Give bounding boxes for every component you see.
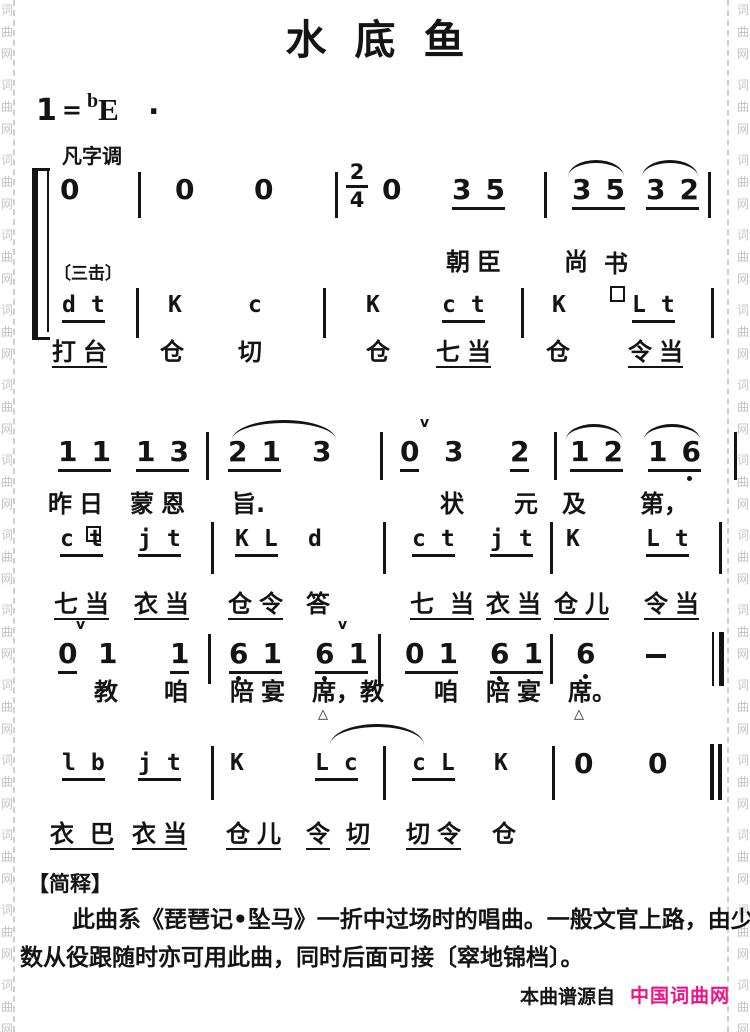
note: 1: [98, 640, 117, 668]
note-group: 0: [58, 640, 77, 674]
percussion-group: jt: [138, 752, 181, 781]
percussion-group: ct: [60, 528, 103, 557]
barline: [211, 746, 214, 800]
barline: [383, 746, 386, 800]
percussion-group: lb: [62, 752, 105, 781]
watermark-char: 词: [1, 754, 13, 766]
lyric: 仓: [366, 340, 390, 364]
lyric: 朝臣: [446, 250, 508, 274]
watermark-char: 词: [1, 454, 13, 466]
lyric: 蒙恩: [130, 492, 192, 516]
lyric: 仓: [492, 822, 516, 846]
watermark-char: 网: [737, 348, 749, 360]
note-group: 1: [170, 640, 189, 674]
time-signature: 2 4: [346, 162, 368, 211]
key-signature: 1 = b E: [36, 92, 119, 128]
lyric: 第，: [640, 492, 688, 516]
watermark-char: 网: [737, 273, 749, 285]
note: 3: [312, 438, 331, 466]
watermark-char: 曲: [1, 326, 13, 338]
barline: [708, 172, 711, 218]
watermark-char: 曲: [737, 176, 749, 188]
watermark-char: 词: [737, 604, 749, 616]
barline: [711, 288, 714, 338]
watermark-char: 网: [1, 348, 13, 360]
lyric: 七当: [54, 592, 109, 620]
watermark-char: 曲: [1, 101, 13, 113]
barline: [521, 288, 524, 338]
lyric: 令当: [644, 592, 699, 620]
note: 0: [175, 176, 194, 204]
final-barline-thick: [719, 632, 724, 686]
watermark-char: 曲: [1, 176, 13, 188]
watermark-char: 曲: [1, 551, 13, 563]
watermark-column-right: 词曲网词曲网词曲网词曲网词曲网词曲网词曲网词曲网词曲网词曲网词曲网词曲网词曲网词…: [736, 0, 750, 1032]
note: 0: [254, 176, 273, 204]
rest-dash: [646, 654, 666, 658]
final-barline-thin: [710, 744, 714, 800]
system-start-barline: [47, 170, 49, 332]
lyric: 教: [94, 680, 118, 704]
lyric: 衣当: [134, 592, 189, 620]
watermark-char: 词: [1, 4, 13, 16]
percussion-group: Lt: [646, 528, 689, 557]
annotation-header: 【简释】: [28, 874, 112, 895]
watermark-char: 曲: [737, 251, 749, 263]
lyric: 令当: [628, 340, 683, 368]
annotation-text-line2: 数从役跟随时亦可用此曲，同时后面可接〔窣地锦档〕。: [20, 944, 584, 974]
lyric: 衣当: [132, 822, 187, 850]
watermark-char: 网: [1, 798, 13, 810]
lyric: 昨日: [48, 492, 110, 516]
percussion-note: 0: [574, 750, 593, 778]
note-group: 01: [405, 640, 458, 674]
watermark-char: 曲: [1, 776, 13, 788]
key-dot: .: [148, 90, 159, 120]
note: 0: [60, 176, 79, 204]
lyric: 及: [562, 492, 586, 516]
barline: [380, 432, 383, 480]
lyric: 七当: [410, 592, 474, 620]
barline: [378, 634, 381, 684]
octave-dot-icon: [687, 476, 692, 481]
watermark-char: 词: [737, 379, 749, 391]
watermark-char: 曲: [737, 476, 749, 488]
lyric: 答: [306, 592, 330, 616]
lyric: 旨.: [232, 492, 265, 516]
watermark-char: 曲: [737, 326, 749, 338]
lyric: 仓: [160, 340, 184, 364]
note: 3: [444, 438, 463, 466]
watermark-char: 词: [1, 229, 13, 241]
watermark-char: 网: [1, 273, 13, 285]
note-group: 21: [228, 438, 281, 472]
watermark-char: 网: [737, 123, 749, 135]
watermark-char: 曲: [1, 926, 13, 938]
watermark-char: 词: [737, 979, 749, 991]
percussion-group: KL: [235, 528, 278, 557]
note-group: 35: [572, 176, 625, 210]
percussion-group: cL: [412, 752, 455, 781]
time-signature-top: 2: [350, 162, 365, 183]
percussion-note: c: [248, 294, 262, 317]
barline: [206, 432, 209, 480]
lyric: 状: [440, 492, 464, 516]
watermark-char: 网: [737, 498, 749, 510]
lyric: 仓儿: [226, 822, 281, 850]
percussion-note: d: [308, 528, 322, 551]
watermark-char: 网: [1, 1023, 13, 1032]
note-group: 61: [315, 640, 368, 674]
flat-icon: b: [87, 90, 98, 113]
watermark-char: 词: [737, 529, 749, 541]
equals-sign: =: [62, 96, 82, 124]
lyric: 尚: [564, 250, 588, 274]
watermark-char: 网: [737, 1023, 749, 1032]
key-note: E: [98, 92, 119, 128]
lyric: 席，教: [312, 680, 384, 704]
note-group: 12: [570, 438, 623, 472]
watermark-char: 词: [1, 154, 13, 166]
watermark-char: 网: [1, 198, 13, 210]
barline: [550, 522, 553, 574]
lyric: 切: [346, 822, 370, 850]
barline: [552, 746, 555, 800]
watermark-char: 词: [1, 529, 13, 541]
note-group: 2: [510, 438, 529, 472]
watermark-char: 曲: [1, 626, 13, 638]
watermark-char: 曲: [737, 401, 749, 413]
watermark-char: 词: [737, 79, 749, 91]
page-title: 水底鱼: [0, 20, 750, 61]
three-strikes-label: 〔三击〕: [54, 266, 122, 283]
watermark-char: 曲: [1, 1001, 13, 1013]
mode-label: 凡字调: [62, 146, 122, 166]
barline: [734, 432, 737, 480]
note-group: 61: [490, 640, 543, 674]
barline: [554, 432, 557, 480]
note: 6: [576, 640, 595, 668]
note-group: 32: [646, 176, 699, 210]
lyric: 打台: [52, 340, 107, 368]
note-group: 61: [229, 640, 282, 674]
final-barline-thick: [718, 744, 722, 800]
watermark-char: 网: [1, 948, 13, 960]
watermark-char: 词: [1, 604, 13, 616]
percussion-group: jt: [138, 528, 181, 557]
lyric: 书: [604, 252, 628, 276]
watermark-char: 网: [1, 648, 13, 660]
credit-text: 本曲谱源自: [520, 988, 615, 1007]
lyric: 仓令: [228, 592, 283, 620]
mouth-mark-icon: [610, 286, 625, 302]
watermark-char: 曲: [737, 551, 749, 563]
barline: [323, 288, 326, 338]
lyric: 陪宴: [486, 680, 548, 704]
percussion-note: K: [168, 294, 182, 317]
watermark-char: 网: [737, 423, 749, 435]
note-group: 16: [648, 438, 701, 472]
watermark-char: 词: [737, 229, 749, 241]
watermark-char: 网: [737, 723, 749, 735]
watermark-char: 曲: [1, 401, 13, 413]
watermark-char: 曲: [1, 251, 13, 263]
watermark-char: 词: [1, 979, 13, 991]
watermark-char: 网: [1, 723, 13, 735]
percussion-note: K: [230, 752, 244, 775]
watermark-char: 曲: [737, 701, 749, 713]
credit-site: 中国词曲网: [630, 987, 730, 1006]
watermark-char: 词: [1, 79, 13, 91]
watermark-char: 词: [737, 754, 749, 766]
watermark-char: 网: [1, 873, 13, 885]
final-barline-thin: [712, 632, 714, 686]
watermark-char: 曲: [1, 701, 13, 713]
percussion-note: K: [366, 294, 380, 317]
right-dashed-border: [727, 0, 729, 1032]
watermark-char: 网: [737, 648, 749, 660]
percussion-group: ct: [442, 294, 485, 323]
watermark-char: 词: [737, 304, 749, 316]
watermark-char: 曲: [1, 851, 13, 863]
note-group: 13: [136, 438, 189, 472]
barline: [138, 172, 141, 218]
watermark-char: 网: [737, 873, 749, 885]
note-group: 0: [400, 438, 419, 472]
percussion-note: K: [566, 528, 580, 551]
lyric: 衣当: [486, 592, 541, 620]
watermark-char: 网: [737, 798, 749, 810]
lyric: 席。: [568, 680, 616, 704]
note-group: 11: [58, 438, 111, 472]
lyric: 七当: [436, 340, 491, 368]
watermark-char: 词: [737, 454, 749, 466]
watermark-char: 词: [737, 829, 749, 841]
lyric: 元: [514, 492, 538, 516]
percussion-group: Lc: [315, 752, 358, 781]
lyric: 切令: [406, 822, 461, 850]
time-signature-bottom: 4: [350, 190, 365, 211]
watermark-char: 曲: [737, 1001, 749, 1013]
note: 0: [382, 176, 401, 204]
key-tonic: 1: [36, 93, 57, 128]
barline: [335, 172, 338, 218]
note-group: 35: [452, 176, 505, 210]
watermark-char: 曲: [1, 476, 13, 488]
watermark-char: 曲: [737, 851, 749, 863]
watermark-char: 曲: [737, 626, 749, 638]
watermark-char: 网: [1, 573, 13, 585]
percussion-group: ct: [412, 528, 455, 557]
watermark-char: 词: [1, 829, 13, 841]
accent-triangle-icon: △: [318, 708, 328, 721]
barline: [208, 634, 211, 684]
lyric: 令: [306, 822, 330, 850]
barline: [136, 288, 139, 338]
percussion-group: jt: [490, 528, 533, 557]
watermark-char: 网: [1, 423, 13, 435]
lyric: 衣巴: [50, 822, 114, 850]
breath-mark-icon: v: [338, 618, 347, 632]
barline: [383, 522, 386, 574]
breath-mark-icon: v: [420, 416, 429, 430]
barline: [550, 634, 553, 684]
watermark-char: 词: [737, 4, 749, 16]
watermark-char: 网: [737, 198, 749, 210]
percussion-group: dt: [62, 294, 105, 323]
watermark-column-left: 词曲网词曲网词曲网词曲网词曲网词曲网词曲网词曲网词曲网词曲网词曲网词曲网词曲网词…: [0, 0, 14, 1032]
watermark-char: 曲: [737, 776, 749, 788]
breath-mark-icon: v: [76, 618, 85, 632]
accent-triangle-icon: △: [574, 708, 584, 721]
lyric: 仓: [546, 340, 570, 364]
lyric: 咱: [434, 680, 458, 704]
slur: [330, 724, 424, 745]
lyric: 陪宴: [230, 680, 292, 704]
watermark-char: 曲: [737, 101, 749, 113]
watermark-char: 词: [1, 379, 13, 391]
barline: [544, 172, 547, 218]
percussion-note: K: [552, 294, 566, 317]
watermark-char: 网: [737, 573, 749, 585]
score-page: 词曲网词曲网词曲网词曲网词曲网词曲网词曲网词曲网词曲网词曲网词曲网词曲网词曲网词…: [0, 0, 750, 1032]
watermark-char: 网: [1, 123, 13, 135]
lyric: 咱: [164, 680, 188, 704]
watermark-char: 词: [737, 154, 749, 166]
lyric: 仓儿: [554, 592, 609, 620]
watermark-char: 词: [737, 679, 749, 691]
watermark-char: 词: [1, 304, 13, 316]
barline: [719, 522, 722, 574]
lyric: 切: [238, 340, 262, 364]
watermark-char: 词: [1, 904, 13, 916]
percussion-note: 0: [648, 750, 667, 778]
watermark-char: 网: [737, 948, 749, 960]
percussion-group: Lt: [632, 294, 675, 323]
barline: [211, 522, 214, 574]
watermark-char: 网: [1, 498, 13, 510]
watermark-char: 词: [1, 679, 13, 691]
percussion-note: K: [494, 752, 508, 775]
annotation-text-line1: 此曲系《琵琶记•坠马》一折中过场时的唱曲。一般文官上路，由少: [72, 906, 750, 936]
